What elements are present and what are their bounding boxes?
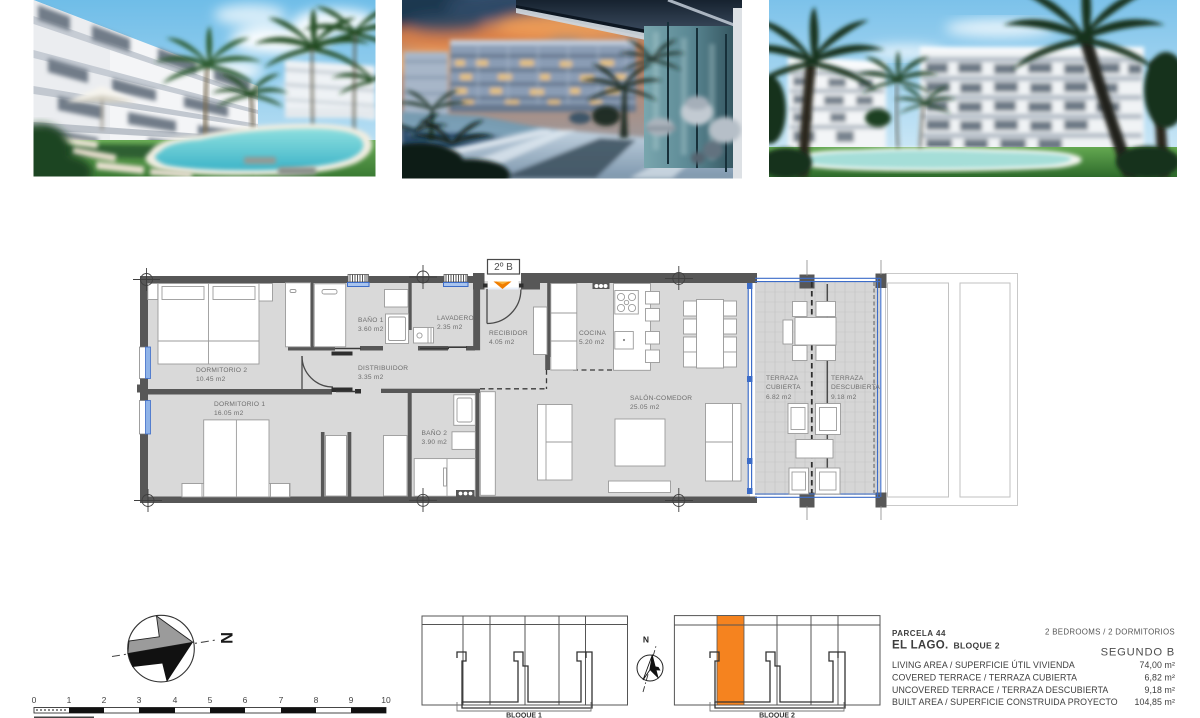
svg-text:6: 6 xyxy=(243,695,248,705)
svg-text:UNCOVERED TERRACE / TERRAZA DE: UNCOVERED TERRACE / TERRAZA DESCUBIERTA xyxy=(892,685,1108,695)
svg-text:CUBIERTA: CUBIERTA xyxy=(766,384,801,391)
svg-text:DESCUBIERTA: DESCUBIERTA xyxy=(831,384,880,391)
svg-text:3.60 m2: 3.60 m2 xyxy=(358,326,384,333)
svg-text:COCINA: COCINA xyxy=(579,330,606,337)
svg-text:PARCELA 44: PARCELA 44 xyxy=(892,629,946,638)
svg-text:2º B: 2º B xyxy=(494,262,513,273)
svg-text:8: 8 xyxy=(314,695,319,705)
svg-text:TERRAZA: TERRAZA xyxy=(831,375,864,382)
svg-text:2 BEDROOMS / 2 DORMITORIOS: 2 BEDROOMS / 2 DORMITORIOS xyxy=(1045,628,1175,637)
svg-text:5.20 m2: 5.20 m2 xyxy=(579,339,605,346)
svg-text:DORMITORIO 2: DORMITORIO 2 xyxy=(196,367,247,374)
svg-text:4: 4 xyxy=(173,695,178,705)
svg-text:10.45 m2: 10.45 m2 xyxy=(196,376,226,383)
svg-text:9.18 m2: 9.18 m2 xyxy=(831,394,857,401)
svg-text:3.90 m2: 3.90 m2 xyxy=(422,439,448,446)
svg-text:25.05 m2: 25.05 m2 xyxy=(630,404,660,411)
svg-text:SALÓN-COMEDOR: SALÓN-COMEDOR xyxy=(630,393,692,402)
svg-text:BAÑO 1: BAÑO 1 xyxy=(358,315,384,324)
svg-text:LIVING AREA / SUPERFICIE ÚTIL: LIVING AREA / SUPERFICIE ÚTIL VIVIENDA xyxy=(892,660,1075,670)
svg-text:BAÑO 2: BAÑO 2 xyxy=(422,428,448,437)
svg-text:1: 1 xyxy=(67,695,72,705)
svg-text:7: 7 xyxy=(279,695,284,705)
svg-text:9: 9 xyxy=(349,695,354,705)
svg-text:COVERED TERRACE / TERRAZA CUBI: COVERED TERRACE / TERRAZA CUBIERTA xyxy=(892,673,1077,683)
svg-text:TERRAZA: TERRAZA xyxy=(766,375,799,382)
svg-text:6,82 m²: 6,82 m² xyxy=(1144,673,1175,683)
svg-text:DISTRIBUIDOR: DISTRIBUIDOR xyxy=(358,365,408,372)
svg-text:104,85 m²: 104,85 m² xyxy=(1134,697,1175,707)
svg-text:10: 10 xyxy=(381,695,391,705)
svg-text:SEGUNDO B: SEGUNDO B xyxy=(1101,647,1175,659)
svg-text:BLOQUE 2: BLOQUE 2 xyxy=(759,713,795,718)
svg-text:3.35 m2: 3.35 m2 xyxy=(358,374,384,381)
svg-text:4.05 m2: 4.05 m2 xyxy=(489,339,515,346)
svg-text:9,18 m²: 9,18 m² xyxy=(1144,685,1175,695)
svg-text:16.05 m2: 16.05 m2 xyxy=(214,410,244,417)
svg-text:74,00 m²: 74,00 m² xyxy=(1139,660,1175,670)
svg-text:0: 0 xyxy=(32,695,37,705)
svg-text:6.82 m2: 6.82 m2 xyxy=(766,394,792,401)
svg-text:BLOQUE 1: BLOQUE 1 xyxy=(506,713,542,718)
svg-text:2.35 m2: 2.35 m2 xyxy=(437,324,463,331)
svg-text:BUILT AREA / SUPERFICIE CONSTR: BUILT AREA / SUPERFICIE CONSTRUIDA PROYE… xyxy=(892,697,1118,707)
svg-text:5: 5 xyxy=(208,695,213,705)
svg-text:N: N xyxy=(217,632,235,644)
svg-text:LAVADERO: LAVADERO xyxy=(437,315,474,322)
svg-text:N: N xyxy=(643,635,649,645)
svg-text:DORMITORIO 1: DORMITORIO 1 xyxy=(214,401,265,408)
svg-text:RECIBIDOR: RECIBIDOR xyxy=(489,330,528,337)
svg-text:2: 2 xyxy=(102,695,107,705)
svg-text:3: 3 xyxy=(137,695,142,705)
svg-text:EL LAGO.BLOQUE 2: EL LAGO.BLOQUE 2 xyxy=(892,640,1000,652)
